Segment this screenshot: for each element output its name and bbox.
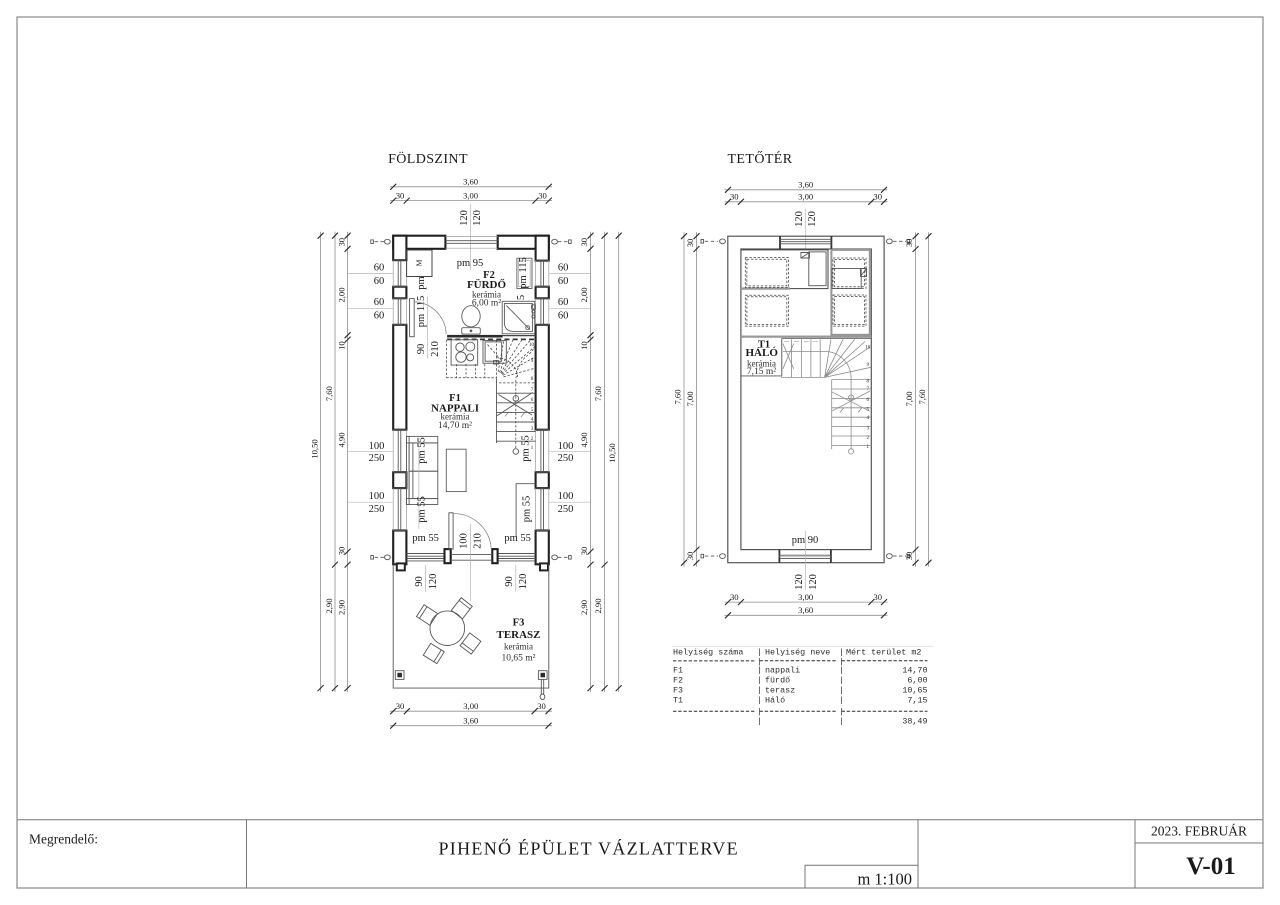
svg-text:pm 55: pm 55: [520, 435, 531, 462]
svg-text:3,60: 3,60: [463, 177, 478, 187]
svg-text:30: 30: [904, 239, 914, 248]
svg-text:7,00: 7,00: [685, 391, 695, 406]
svg-text:pm 95: pm 95: [457, 258, 484, 269]
svg-text:3,00: 3,00: [463, 701, 478, 711]
svg-text:30: 30: [396, 701, 405, 711]
svg-text:F3: F3: [673, 685, 683, 695]
svg-text:100: 100: [369, 491, 385, 502]
svg-text:90: 90: [414, 576, 425, 587]
svg-text:30: 30: [337, 547, 347, 556]
svg-text:14,70 m²: 14,70 m²: [438, 421, 472, 431]
svg-text:Helyiség neve: Helyiség neve: [765, 647, 830, 657]
svg-text:30: 30: [730, 592, 739, 602]
svg-text:60: 60: [374, 276, 385, 287]
svg-text:250: 250: [369, 504, 385, 515]
svg-text:pm 55: pm 55: [504, 533, 531, 544]
svg-text:7,60: 7,60: [917, 389, 927, 404]
svg-text:2,90: 2,90: [579, 600, 589, 615]
svg-text:120: 120: [459, 210, 470, 226]
svg-text:30: 30: [873, 592, 882, 602]
svg-text:60: 60: [558, 262, 569, 273]
svg-text:250: 250: [558, 453, 574, 464]
svg-text:30: 30: [904, 552, 914, 561]
svg-text:|: |: [757, 665, 762, 675]
svg-text:2,90: 2,90: [337, 600, 347, 615]
svg-text:6,00: 6,00: [907, 675, 927, 685]
svg-text:pm 55: pm 55: [417, 496, 428, 523]
svg-text:F2: F2: [673, 675, 683, 685]
svg-text:7,15: 7,15: [907, 695, 927, 705]
svg-text:100: 100: [458, 533, 469, 549]
svg-text:pm 55: pm 55: [417, 437, 428, 464]
svg-text:90: 90: [416, 344, 427, 355]
svg-text:30: 30: [873, 192, 882, 202]
svg-text:M: M: [415, 259, 424, 266]
svg-text:Háló: Háló: [765, 695, 785, 705]
svg-text:F3: F3: [513, 618, 525, 629]
svg-text:|: |: [839, 685, 844, 695]
svg-text:10: 10: [579, 341, 589, 350]
svg-text:14,70: 14,70: [902, 665, 927, 675]
svg-text:F1: F1: [673, 665, 683, 675]
svg-text:pm: pm: [416, 276, 427, 289]
svg-text:38,49: 38,49: [902, 716, 927, 726]
svg-text:nappali: nappali: [765, 665, 800, 675]
svg-text:pm 90: pm 90: [792, 535, 819, 546]
svg-text:120: 120: [794, 574, 805, 590]
svg-text:3,60: 3,60: [798, 180, 813, 190]
svg-text:kerámia: kerámia: [504, 642, 533, 652]
svg-text:4,90: 4,90: [337, 432, 347, 447]
svg-text:120: 120: [794, 211, 805, 227]
svg-text:10: 10: [865, 346, 871, 351]
svg-text:2023. FEBRUÁR: 2023. FEBRUÁR: [1151, 824, 1247, 839]
svg-text:|: |: [839, 647, 844, 657]
svg-text:3,00: 3,00: [798, 592, 813, 602]
svg-text:2,90: 2,90: [324, 598, 334, 613]
svg-text:HÁLÓ: HÁLÓ: [745, 347, 778, 359]
svg-text:60: 60: [558, 311, 569, 322]
svg-text:2,00: 2,00: [579, 287, 589, 302]
svg-text:3,60: 3,60: [798, 605, 813, 615]
svg-text:10: 10: [529, 343, 535, 348]
svg-text:120: 120: [808, 574, 819, 590]
svg-text:|: |: [839, 665, 844, 675]
svg-text:PIHENŐ ÉPÜLET VÁZLATTERVE: PIHENŐ ÉPÜLET VÁZLATTERVE: [439, 838, 739, 859]
svg-text:7,00: 7,00: [904, 391, 914, 406]
svg-text:|: |: [839, 695, 844, 705]
svg-text:FÖLDSZINT: FÖLDSZINT: [388, 150, 468, 167]
svg-text:10,65: 10,65: [902, 685, 927, 695]
svg-text:10,65 m²: 10,65 m²: [502, 654, 536, 664]
svg-text:100: 100: [558, 441, 574, 452]
svg-text:6,00 m²: 6,00 m²: [472, 299, 501, 309]
svg-text:100: 100: [558, 491, 574, 502]
svg-text:|: |: [757, 695, 762, 705]
svg-text:m 1:100: m 1:100: [857, 870, 912, 889]
svg-text:30: 30: [396, 190, 405, 200]
svg-text:60: 60: [374, 297, 385, 308]
svg-text:|: |: [839, 675, 844, 685]
svg-text:pm 115: pm 115: [518, 257, 529, 288]
svg-text:120: 120: [472, 210, 483, 226]
svg-text:30: 30: [730, 192, 739, 202]
svg-text:30: 30: [537, 701, 546, 711]
svg-text:30: 30: [579, 547, 589, 556]
svg-text:pm 55: pm 55: [412, 533, 439, 544]
svg-text:10,50: 10,50: [607, 443, 617, 462]
svg-text:Mért terület m2: Mért terület m2: [846, 647, 921, 657]
svg-text:TETŐTÉR: TETŐTÉR: [727, 150, 792, 167]
svg-text:3,60: 3,60: [463, 716, 478, 726]
svg-text:30: 30: [538, 190, 547, 200]
svg-text:210: 210: [473, 533, 484, 549]
svg-text:60: 60: [558, 276, 569, 287]
svg-text:|: |: [757, 685, 762, 695]
svg-text:250: 250: [369, 453, 385, 464]
svg-text:pm 115: pm 115: [416, 296, 427, 327]
svg-text:|: |: [757, 647, 762, 657]
svg-text:Megrendelő:: Megrendelő:: [29, 832, 98, 847]
svg-text:7,15 m²: 7,15 m²: [747, 367, 776, 377]
svg-text:30: 30: [579, 238, 589, 247]
svg-text:10: 10: [337, 341, 347, 350]
svg-text:pm 55: pm 55: [522, 496, 533, 523]
svg-text:250: 250: [558, 504, 574, 515]
svg-text:30: 30: [337, 238, 347, 247]
svg-text:7,60: 7,60: [593, 386, 603, 401]
svg-text:|: |: [839, 716, 844, 726]
svg-text:210: 210: [430, 341, 441, 357]
svg-text:T1: T1: [673, 695, 683, 705]
svg-text:fürdő: fürdő: [765, 675, 790, 685]
svg-text:120: 120: [428, 574, 439, 590]
svg-text:60: 60: [374, 311, 385, 322]
svg-text:TERASZ: TERASZ: [496, 629, 540, 641]
svg-text:|: |: [757, 675, 762, 685]
svg-text:120: 120: [807, 211, 818, 227]
svg-text:V-01: V-01: [1186, 853, 1236, 880]
svg-text:|: |: [757, 716, 762, 726]
svg-text:Helyiség száma: Helyiség száma: [673, 647, 743, 657]
svg-text:3,00: 3,00: [798, 192, 813, 202]
svg-text:4,90: 4,90: [579, 432, 589, 447]
svg-text:10,50: 10,50: [310, 439, 320, 458]
svg-text:3,00: 3,00: [463, 190, 478, 200]
svg-text:30: 30: [685, 552, 695, 561]
svg-text:60: 60: [374, 262, 385, 273]
svg-text:7,60: 7,60: [324, 386, 334, 401]
svg-text:5: 5: [516, 295, 527, 300]
svg-text:60: 60: [558, 297, 569, 308]
svg-text:7,60: 7,60: [673, 389, 683, 404]
svg-text:terasz: terasz: [765, 685, 795, 695]
svg-text:100: 100: [369, 441, 385, 452]
svg-text:120: 120: [518, 574, 529, 590]
svg-text:30: 30: [685, 239, 695, 248]
svg-text:90: 90: [504, 576, 515, 587]
svg-text:2,00: 2,00: [337, 287, 347, 302]
svg-text:2,90: 2,90: [593, 598, 603, 613]
